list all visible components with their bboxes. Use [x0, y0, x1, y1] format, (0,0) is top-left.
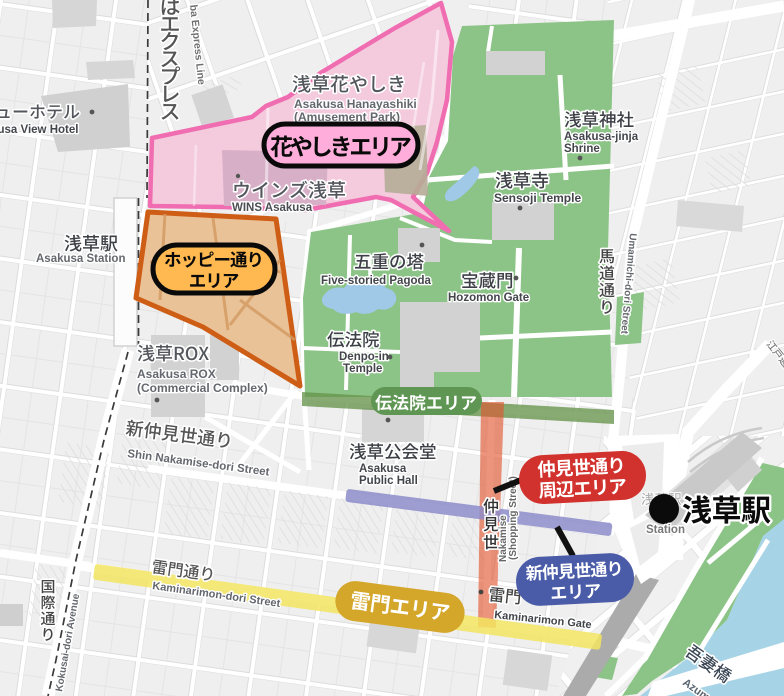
- svg-text:Asakusa Hanayashiki: Asakusa Hanayashiki: [294, 97, 417, 111]
- svg-text:Sensoji Temple: Sensoji Temple: [494, 191, 581, 205]
- svg-text:Asakusa: Asakusa: [359, 463, 407, 475]
- svg-text:Asakusa View Hotel: Asakusa View Hotel: [0, 124, 78, 136]
- svg-text:Denpo-in: Denpo-in: [339, 351, 389, 363]
- svg-text:Temple: Temple: [343, 363, 382, 375]
- svg-text:Asakusa-jinja: Asakusa-jinja: [564, 131, 639, 143]
- svg-text:Asakusa ROX: Asakusa ROX: [137, 367, 216, 381]
- svg-text:Asakusa Station: Asakusa Station: [36, 253, 125, 265]
- svg-text:WINS Asakusa: WINS Asakusa: [232, 202, 313, 214]
- svg-text:Public Hall: Public Hall: [359, 475, 418, 487]
- svg-text:(Shopping Street): (Shopping Street): [508, 476, 519, 560]
- svg-text:Shrine: Shrine: [564, 143, 600, 155]
- svg-text:Five-storied Pagoda: Five-storied Pagoda: [321, 275, 432, 287]
- svg-text:Station: Station: [646, 524, 685, 536]
- svg-text:Hozomon Gate: Hozomon Gate: [448, 292, 529, 304]
- svg-text:(Commercial Complex): (Commercial Complex): [137, 381, 268, 395]
